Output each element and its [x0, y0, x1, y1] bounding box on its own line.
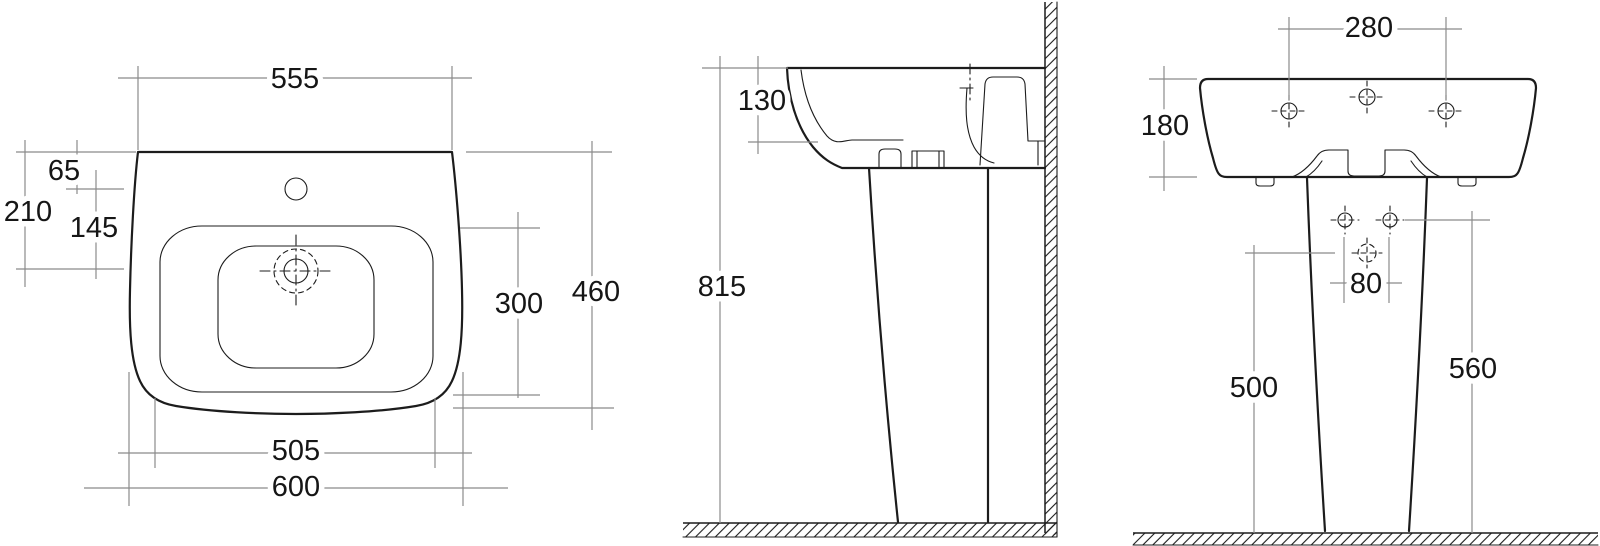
dim-label-fixing-hole-spacing: 80 — [1350, 268, 1382, 300]
dim-label-overall-width: 600 — [272, 471, 320, 503]
side-basin-profile — [787, 68, 1045, 168]
drawing-sheet: 555 65 210 145 300 460 505 600 — [0, 0, 1600, 546]
side-view: 130 815 — [683, 2, 1057, 537]
side-trap-cover — [980, 77, 1045, 165]
front-mounting-tabs — [1256, 177, 1476, 186]
side-bowl-back-curve — [960, 88, 994, 163]
dim-label-tap-hole-spacing: 280 — [1345, 12, 1393, 44]
front-view: 280 180 80 500 560 — [1133, 12, 1598, 545]
dim-label-tap-to-drain: 145 — [70, 212, 118, 244]
dim-label-pedestal-back-height: 560 — [1449, 353, 1497, 385]
front-floor-hatch — [1133, 533, 1598, 545]
technical-drawing: 555 65 210 145 300 460 505 600 — [0, 0, 1600, 546]
dim-label-rim-depth: 130 — [738, 85, 786, 117]
dim-label-top-width: 555 — [271, 63, 319, 95]
plan-tap-hole — [285, 178, 307, 200]
front-pedestal-holes — [1331, 206, 1404, 268]
dim-label-basin-height: 180 — [1141, 110, 1189, 142]
front-basin-outline — [1200, 79, 1536, 177]
side-overflow-bump — [879, 149, 901, 168]
dim-label-bowl-length: 300 — [495, 288, 543, 320]
plan-view: 555 65 210 145 300 460 505 600 — [4, 63, 620, 506]
dim-label-pedestal-front-height: 500 — [1230, 372, 1278, 404]
dim-label-drain-offset: 210 — [4, 196, 52, 228]
dim-label-tap-hole-offset: 65 — [48, 155, 80, 187]
dim-label-overall-depth: 460 — [572, 276, 620, 308]
front-tap-holes — [1272, 81, 1463, 127]
front-back-bracket — [1292, 150, 1441, 177]
front-pedestal — [1307, 178, 1427, 531]
side-bowl-profile — [801, 70, 903, 142]
side-drain-outlet — [912, 151, 944, 168]
side-pedestal — [869, 168, 988, 522]
side-floor-hatch — [683, 523, 1057, 537]
dim-label-total-height: 815 — [698, 271, 746, 303]
dim-label-inner-width: 505 — [272, 435, 320, 467]
side-wall-hatch — [1045, 2, 1057, 535]
